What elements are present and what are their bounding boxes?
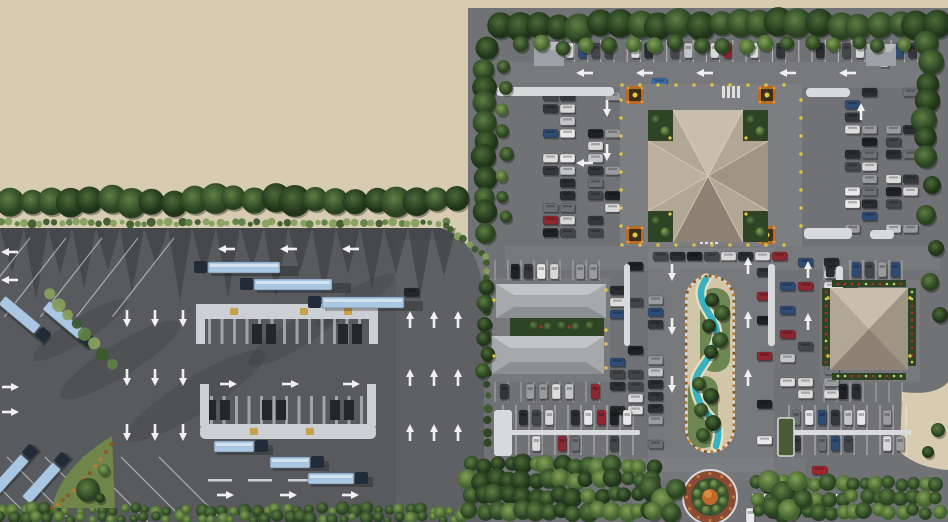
shrub: [51, 219, 57, 225]
border-dot: [684, 356, 687, 359]
border-dot: [72, 488, 76, 492]
shrub: [147, 218, 156, 227]
planter-dot: [641, 87, 644, 90]
parked-car: [862, 150, 878, 160]
shrub: [822, 492, 837, 507]
car-body: [524, 264, 533, 279]
car-body: [500, 384, 509, 399]
truck-trailer: [214, 441, 254, 452]
parked-car: [610, 436, 620, 453]
border-dot: [708, 274, 711, 277]
car-body: [571, 436, 580, 451]
shrub: [61, 507, 70, 516]
car-glass: [848, 164, 857, 166]
parked-car: [610, 370, 626, 380]
car-glass: [854, 387, 860, 390]
tree: [918, 49, 944, 75]
car-glass: [546, 106, 555, 108]
border-dot: [684, 388, 687, 391]
shrub: [446, 507, 455, 516]
stall-divider: [221, 318, 224, 344]
canopy-roof: [200, 424, 376, 439]
shrub: [121, 504, 130, 513]
car-body: [543, 166, 558, 175]
car-glass: [563, 180, 572, 182]
parked-car: [704, 252, 720, 262]
shrub: [181, 505, 191, 515]
border-dot: [732, 326, 735, 329]
parked-car: [883, 410, 893, 427]
parked-car: [605, 191, 621, 201]
border-dot: [684, 414, 687, 417]
car-glass: [591, 168, 600, 170]
planter-dot: [759, 87, 762, 90]
flower-dot: [825, 305, 828, 308]
flower-dot: [911, 319, 914, 322]
car-body: [852, 384, 861, 399]
tree: [712, 332, 728, 348]
parked-car: [684, 43, 694, 60]
car-glass: [724, 254, 733, 256]
car-glass: [846, 439, 852, 442]
car-body: [526, 384, 535, 399]
car-body: [648, 440, 663, 449]
car-body: [628, 346, 643, 355]
car-glass: [563, 156, 572, 158]
tree: [702, 319, 716, 333]
car-body: [539, 384, 548, 399]
tree: [922, 446, 934, 458]
car-glass: [783, 308, 792, 310]
tree: [626, 37, 642, 53]
car-body: [883, 436, 892, 451]
border-dot: [99, 457, 103, 461]
shrub: [360, 219, 368, 227]
car-body: [772, 252, 787, 261]
truck-cab: [240, 278, 253, 290]
flower-dot: [911, 326, 914, 329]
roundabout-bush: [710, 480, 719, 489]
car-body: [757, 400, 772, 409]
car-body: [903, 88, 918, 97]
flower-dot: [865, 283, 868, 286]
car-glass: [554, 387, 560, 390]
car-body: [738, 252, 753, 261]
shrub: [95, 348, 108, 361]
car-glass: [528, 387, 534, 390]
shrub: [156, 219, 163, 226]
fuel-pump: [344, 400, 354, 420]
border-dot: [109, 442, 113, 446]
shrub: [43, 219, 50, 226]
lamp: [710, 243, 713, 246]
lamp: [799, 134, 802, 137]
apron-dot: [732, 495, 735, 498]
shrub: [460, 502, 477, 519]
truck-cab: [311, 456, 324, 468]
car-body: [886, 175, 901, 184]
shrub: [578, 472, 593, 487]
truck-trailer: [308, 473, 354, 484]
tree: [705, 415, 721, 431]
car-body: [805, 410, 814, 425]
car-glass: [625, 413, 631, 416]
car-body: [839, 384, 848, 399]
tree: [921, 273, 939, 291]
fuel-pump: [338, 324, 348, 344]
fuel-pump: [276, 400, 286, 420]
car-glass: [613, 408, 622, 410]
parked-car: [886, 150, 902, 160]
car-body: [891, 262, 900, 277]
shrub: [411, 219, 420, 228]
car-glass: [608, 168, 617, 170]
car-body: [560, 191, 575, 200]
car-glass: [794, 413, 800, 416]
shrub: [44, 288, 55, 299]
parked-car: [648, 320, 664, 330]
truck-trailer: [254, 279, 332, 290]
car-body: [780, 330, 795, 339]
car-body: [852, 262, 861, 277]
border-dot: [732, 358, 735, 361]
tree: [497, 60, 510, 73]
tree: [556, 41, 571, 56]
car-body: [831, 436, 840, 451]
shrub: [343, 218, 351, 226]
shrub: [881, 505, 896, 520]
car-glass: [613, 360, 622, 362]
car-body: [903, 224, 918, 233]
shrub: [348, 513, 356, 521]
parked-car: [896, 436, 906, 453]
flower-bed: [778, 418, 794, 456]
shrub: [268, 218, 276, 226]
car-body: [543, 104, 558, 113]
car-body: [623, 410, 632, 425]
car-body: [588, 154, 603, 163]
tree: [714, 305, 730, 321]
flower-dot: [911, 347, 914, 350]
border-dot: [688, 439, 691, 442]
border-dot: [730, 287, 733, 290]
roundabout-bush: [719, 497, 728, 506]
parked-car: [532, 410, 542, 427]
parked-car: [588, 142, 604, 152]
border-dot: [684, 336, 687, 339]
car-glass: [906, 226, 915, 228]
lamp: [728, 83, 731, 86]
shrub: [435, 221, 441, 227]
car-glass: [848, 114, 857, 116]
shrub: [482, 253, 489, 260]
car-glass: [573, 439, 579, 442]
tree: [496, 170, 508, 182]
garden-bush: [756, 228, 765, 237]
lamp: [799, 224, 802, 227]
car-body: [862, 138, 877, 147]
shrub: [336, 501, 350, 515]
shrub: [130, 502, 141, 513]
shrub: [88, 219, 95, 226]
parked-car: [886, 200, 902, 210]
car-body: [648, 296, 663, 305]
planter-dot: [641, 241, 644, 244]
parking-island: [870, 230, 894, 239]
car-glass: [534, 439, 540, 442]
car-glass: [848, 152, 857, 154]
car-body: [844, 436, 853, 451]
border-dot: [684, 297, 687, 300]
tree: [916, 205, 936, 225]
tree: [923, 176, 941, 194]
parked-car: [648, 404, 664, 414]
car-body: [610, 436, 619, 451]
car-glass: [578, 267, 584, 270]
tree: [897, 38, 911, 52]
truck-cab: [355, 472, 368, 484]
planter-dot: [627, 227, 630, 230]
roundabout-bush: [693, 489, 702, 498]
car-body: [648, 356, 663, 365]
garden-bush: [651, 115, 661, 125]
car-body: [543, 216, 558, 225]
car-body: [886, 138, 901, 147]
lamp: [799, 98, 802, 101]
car-body: [818, 436, 827, 451]
car-glass: [865, 164, 874, 166]
parked-car: [903, 175, 919, 185]
border-dot: [732, 371, 735, 374]
tree: [475, 223, 496, 244]
car-body: [780, 306, 795, 315]
car-glass: [898, 439, 904, 442]
border-dot: [50, 506, 54, 510]
car-glass: [608, 131, 617, 133]
parking-island: [500, 430, 640, 435]
border-dot: [684, 408, 687, 411]
parked-car: [805, 410, 815, 427]
car-glass: [841, 387, 847, 390]
parking-island: [804, 228, 852, 239]
shrub: [316, 502, 328, 514]
stall-divider: [360, 396, 363, 424]
shrub: [565, 506, 581, 522]
car-body: [648, 380, 663, 389]
parked-car: [571, 410, 581, 427]
car-body: [798, 378, 813, 387]
semi-truck: [308, 472, 373, 487]
parked-car: [845, 125, 861, 135]
parked-car: [755, 252, 771, 262]
border-dot: [692, 444, 695, 447]
lamp: [799, 152, 802, 155]
lamp: [619, 152, 622, 155]
tree: [853, 36, 867, 50]
car-body: [588, 129, 603, 138]
flower-dot: [872, 375, 875, 378]
lamp: [782, 83, 785, 86]
apron-dot: [729, 484, 732, 487]
ornamental-planter: [626, 86, 644, 104]
flower-dot: [851, 375, 854, 378]
lamp: [799, 116, 802, 119]
car-body: [886, 200, 901, 209]
border-dot: [726, 282, 729, 285]
parked-car: [648, 356, 664, 366]
car-body: [560, 228, 575, 237]
car-body: [519, 410, 528, 425]
stall-divider: [273, 396, 276, 424]
apron-dot: [708, 472, 711, 475]
car-glass: [885, 439, 891, 442]
car-glass: [760, 402, 769, 404]
car-body: [865, 262, 874, 277]
roundabout-bush: [718, 486, 727, 495]
tree: [932, 307, 948, 323]
parked-car: [404, 288, 420, 298]
lamp: [908, 354, 911, 357]
shrub: [306, 220, 314, 228]
car-glass: [591, 131, 600, 133]
roundabout-bush: [712, 505, 721, 514]
border-dot: [732, 430, 735, 433]
parked-car: [891, 262, 901, 279]
site-plan-canvas: [0, 0, 948, 522]
car-body: [886, 125, 901, 134]
car-glass: [651, 310, 660, 312]
parked-car: [818, 410, 828, 427]
shrub: [141, 221, 147, 227]
car-glass: [865, 189, 874, 191]
parked-car: [628, 370, 644, 380]
shrub: [315, 220, 320, 225]
car-body: [780, 354, 795, 363]
flower-dot: [825, 312, 828, 315]
car-glass: [631, 372, 640, 374]
shrub: [110, 220, 117, 227]
car-body: [610, 358, 625, 367]
tree: [757, 35, 773, 51]
car-body: [687, 252, 702, 261]
car-body: [543, 129, 558, 138]
car-body: [653, 252, 668, 261]
car-body: [862, 200, 877, 209]
parked-car: [648, 296, 664, 306]
parked-car: [687, 252, 703, 262]
trailer-highlight: [324, 299, 402, 302]
parked-car: [862, 162, 878, 172]
shrub: [62, 309, 73, 320]
parked-car: [831, 436, 841, 453]
car-body: [648, 368, 663, 377]
border-dot: [686, 291, 689, 294]
stall-divider: [308, 318, 311, 344]
parked-car: [844, 410, 854, 427]
shrub: [203, 218, 210, 225]
border-dot: [698, 277, 701, 280]
car-glass: [833, 439, 839, 442]
car-body: [883, 410, 892, 425]
truck-trailer: [208, 262, 280, 273]
car-body: [511, 264, 520, 279]
parked-car: [588, 228, 604, 238]
car-glass: [563, 218, 572, 220]
parked-car: [560, 129, 576, 139]
car-body: [560, 179, 575, 188]
parked-car: [628, 382, 644, 392]
site-plan-rendering: [0, 0, 948, 522]
parked-car: [519, 410, 529, 427]
flower-dot: [893, 283, 896, 286]
garden-bush: [756, 127, 765, 136]
car-glass: [608, 193, 617, 195]
parked-car: [610, 310, 626, 320]
roof-facet: [496, 307, 606, 318]
lamp: [746, 243, 749, 246]
shrub: [217, 219, 225, 227]
car-glass: [613, 300, 622, 302]
shrub: [80, 218, 88, 226]
lamp: [728, 243, 731, 246]
car-body: [845, 162, 860, 171]
right-building-block: [820, 280, 920, 382]
flower-dot: [886, 375, 889, 378]
car-body: [648, 308, 663, 317]
car-glass: [546, 131, 555, 133]
shrub: [52, 298, 65, 311]
tree: [481, 347, 495, 361]
border-dot: [732, 410, 735, 413]
car-body: [588, 179, 603, 188]
car-glass: [760, 438, 769, 440]
parked-car: [903, 187, 919, 197]
apron-dot: [688, 507, 691, 510]
car-glass: [613, 312, 622, 314]
parked-car: [610, 410, 620, 427]
planter-dot: [773, 241, 776, 244]
car-body: [780, 282, 795, 291]
car-body: [704, 252, 719, 261]
tree: [500, 211, 512, 223]
flower-dot: [865, 375, 868, 378]
border-dot: [55, 502, 59, 506]
shrub: [483, 428, 492, 437]
planter-dot: [773, 227, 776, 230]
car-glass: [407, 290, 416, 292]
parked-car: [798, 390, 814, 400]
parked-car: [552, 384, 562, 401]
lamp: [638, 243, 641, 246]
truck-cab: [308, 296, 321, 308]
border-dot: [684, 427, 687, 430]
shrub: [919, 507, 932, 520]
tree: [475, 37, 498, 60]
shrub: [382, 219, 388, 225]
car-glass: [526, 267, 532, 270]
parked-car: [886, 175, 902, 185]
roundabout-bush: [699, 481, 708, 490]
parked-car: [826, 262, 836, 279]
tree: [666, 479, 686, 499]
car-body: [628, 370, 643, 379]
car-body: [610, 370, 625, 379]
parked-car: [780, 330, 796, 340]
apron-dot: [729, 507, 732, 510]
car-body: [845, 125, 860, 134]
shrub: [5, 218, 13, 226]
parked-car: [560, 216, 576, 226]
